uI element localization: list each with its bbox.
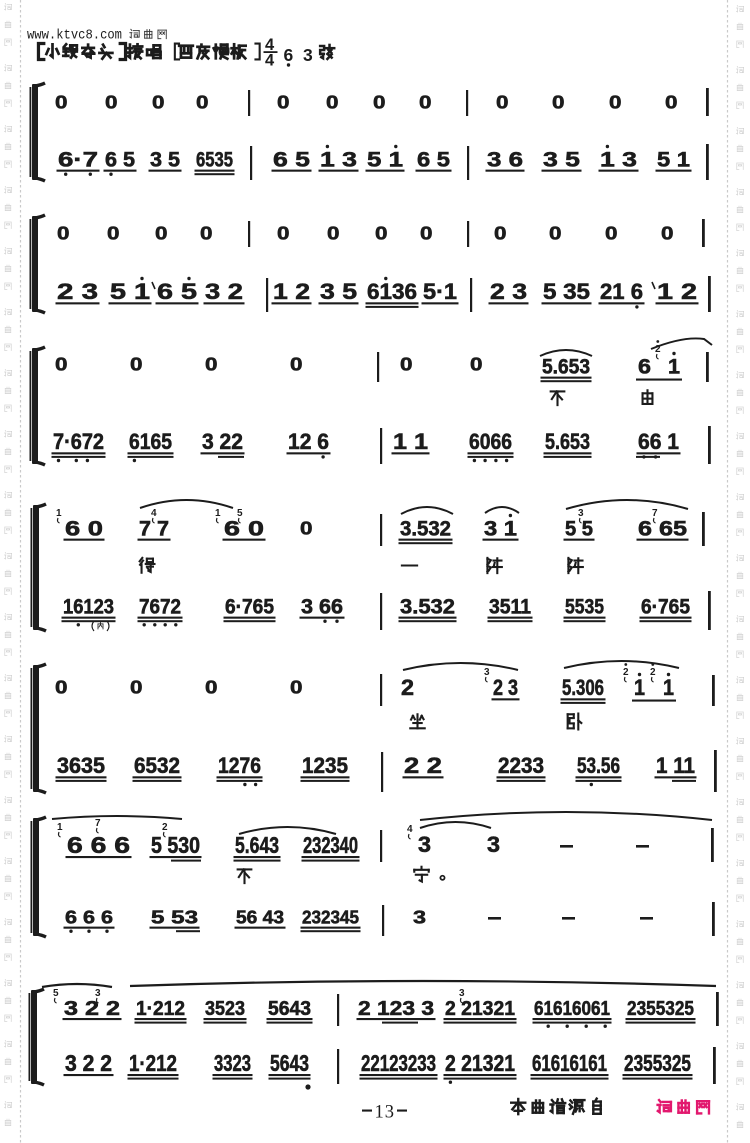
- svg-text:1·212: 1·212: [136, 998, 185, 1020]
- svg-text:3 6: 3 6: [487, 148, 523, 171]
- svg-text:6: 6: [284, 45, 294, 65]
- svg-text:3: 3: [487, 832, 500, 857]
- svg-text:6 0: 6 0: [65, 517, 103, 540]
- svg-text:5: 5: [237, 508, 243, 519]
- svg-text:6 5: 6 5: [273, 148, 310, 171]
- svg-text:1: 1: [663, 675, 674, 700]
- svg-text:6532: 6532: [134, 753, 180, 778]
- svg-text:3511: 3511: [489, 595, 531, 618]
- svg-text:2: 2: [623, 667, 629, 678]
- svg-text:3: 3: [303, 45, 313, 65]
- svg-text:5·1: 5·1: [423, 279, 457, 304]
- svg-text:3 66: 3 66: [301, 595, 343, 618]
- svg-text:5.306: 5.306: [562, 675, 604, 700]
- svg-text:2 123 3: 2 123 3: [358, 998, 434, 1020]
- svg-text:3.532: 3.532: [400, 595, 455, 618]
- svg-text:6: 6: [638, 355, 651, 378]
- svg-text:3 2 2: 3 2 2: [65, 1050, 112, 1076]
- svg-text:3635: 3635: [57, 753, 105, 778]
- svg-text:6 6 6: 6 6 6: [65, 906, 113, 927]
- svg-text:3 2: 3 2: [205, 279, 243, 304]
- svg-text:0: 0: [55, 677, 68, 698]
- svg-text:1 3: 1 3: [320, 148, 357, 171]
- svg-text:66 1: 66 1: [638, 429, 679, 454]
- svg-text:5.643: 5.643: [235, 832, 279, 858]
- svg-text:3: 3: [459, 988, 465, 999]
- svg-text:3 22: 3 22: [202, 429, 243, 454]
- svg-text:6066: 6066: [469, 429, 512, 454]
- svg-text:1 11: 1 11: [656, 753, 695, 778]
- svg-text:3.532: 3.532: [400, 517, 451, 540]
- svg-text:3: 3: [578, 508, 584, 519]
- svg-text:1 2: 1 2: [657, 279, 697, 304]
- svg-text:1: 1: [56, 508, 62, 519]
- svg-text:0: 0: [196, 92, 209, 113]
- svg-text:5 1: 5 1: [367, 148, 403, 171]
- svg-text:1: 1: [668, 355, 680, 378]
- svg-text:1276: 1276: [218, 753, 261, 778]
- svg-text:www.ktvc8.com: www.ktvc8.com: [27, 29, 122, 44]
- svg-text:3 5: 3 5: [150, 148, 180, 171]
- svg-text:12 6: 12 6: [288, 429, 329, 454]
- svg-text:0: 0: [665, 92, 678, 113]
- svg-text:0: 0: [290, 677, 303, 698]
- svg-text:1: 1: [57, 822, 63, 833]
- svg-text:6·765: 6·765: [641, 595, 690, 618]
- svg-text:2 21321: 2 21321: [445, 998, 515, 1020]
- svg-text:2 3: 2 3: [493, 675, 518, 700]
- svg-text:5.653: 5.653: [542, 355, 590, 378]
- svg-text:3 5: 3 5: [543, 148, 580, 171]
- svg-text:0: 0: [420, 223, 433, 244]
- svg-text:1235: 1235: [302, 753, 348, 778]
- svg-text:61616161: 61616161: [532, 1050, 607, 1076]
- svg-text:0: 0: [326, 92, 339, 113]
- svg-text:3 1: 3 1: [484, 517, 517, 540]
- svg-text:0: 0: [470, 354, 483, 375]
- svg-text:2 3: 2 3: [57, 279, 98, 304]
- svg-text:6 5: 6 5: [417, 148, 450, 171]
- svg-text:6 65: 6 65: [638, 517, 687, 540]
- svg-text:0: 0: [55, 92, 68, 113]
- svg-text:5643: 5643: [270, 1050, 309, 1076]
- svg-text:0: 0: [400, 354, 413, 375]
- svg-text:0: 0: [419, 92, 432, 113]
- svg-text:0: 0: [152, 92, 165, 113]
- svg-text:6136: 6136: [367, 279, 417, 304]
- svg-text:5535: 5535: [565, 595, 604, 618]
- svg-text:5 1: 5 1: [657, 148, 690, 171]
- svg-text:13: 13: [375, 1103, 395, 1123]
- svg-text:0: 0: [300, 518, 313, 539]
- svg-text:21 6: 21 6: [600, 279, 643, 304]
- svg-text:61616061: 61616061: [534, 998, 610, 1020]
- svg-text:5 53: 5 53: [151, 906, 198, 927]
- svg-text:1 1: 1 1: [393, 429, 428, 454]
- svg-text:3 5: 3 5: [320, 279, 357, 304]
- svg-text:0: 0: [200, 223, 213, 244]
- svg-text:2 2: 2 2: [404, 753, 442, 778]
- svg-text:0: 0: [290, 354, 303, 375]
- svg-text:6535: 6535: [196, 148, 233, 171]
- svg-text:6 5: 6 5: [157, 279, 197, 304]
- svg-text:0: 0: [552, 92, 565, 113]
- svg-text:3: 3: [484, 667, 490, 678]
- svg-text:2: 2: [650, 667, 656, 678]
- svg-text:6 6 6: 6 6 6: [67, 832, 130, 858]
- svg-text:5: 5: [53, 988, 59, 999]
- svg-text:3323: 3323: [214, 1050, 251, 1076]
- svg-text:0: 0: [496, 92, 509, 113]
- svg-text:1 3: 1 3: [600, 148, 637, 171]
- svg-text:0: 0: [205, 354, 218, 375]
- svg-text:7672: 7672: [139, 595, 181, 618]
- svg-text:7: 7: [95, 818, 101, 829]
- svg-text:2 3: 2 3: [490, 279, 527, 304]
- svg-text:5 1: 5 1: [110, 279, 150, 304]
- svg-text:1: 1: [634, 675, 645, 700]
- svg-text:0: 0: [105, 92, 118, 113]
- svg-text:1 2: 1 2: [273, 279, 310, 304]
- svg-text:0: 0: [107, 223, 120, 244]
- svg-text:3: 3: [418, 832, 431, 857]
- svg-text:2355325: 2355325: [624, 1050, 691, 1076]
- svg-text:56 43: 56 43: [236, 906, 284, 927]
- svg-text:5.653: 5.653: [545, 429, 590, 454]
- svg-text:0: 0: [549, 223, 562, 244]
- svg-text:22123233: 22123233: [361, 1050, 436, 1076]
- svg-text:0: 0: [609, 92, 622, 113]
- svg-text:7: 7: [652, 508, 658, 519]
- svg-text:6·7: 6·7: [58, 148, 98, 171]
- svg-text:0: 0: [130, 677, 143, 698]
- svg-text:5 35: 5 35: [543, 279, 590, 304]
- svg-text:2: 2: [401, 675, 414, 700]
- svg-text:3: 3: [95, 988, 101, 999]
- svg-text:7·672: 7·672: [53, 429, 104, 454]
- svg-text:4: 4: [265, 52, 275, 70]
- svg-text:4: 4: [151, 508, 157, 519]
- svg-text:4: 4: [407, 824, 413, 835]
- svg-text:0: 0: [55, 354, 68, 375]
- svg-text:2233: 2233: [498, 753, 544, 778]
- svg-text:0: 0: [373, 92, 386, 113]
- svg-text:6 0: 6 0: [224, 517, 264, 540]
- svg-text:232340: 232340: [303, 832, 358, 858]
- svg-text:0: 0: [375, 223, 388, 244]
- svg-text:2: 2: [162, 822, 168, 833]
- svg-text:1: 1: [215, 508, 221, 519]
- svg-text:5643: 5643: [268, 998, 311, 1020]
- svg-text:3: 3: [413, 906, 426, 927]
- svg-text:232345: 232345: [302, 906, 359, 927]
- svg-text:0: 0: [494, 223, 507, 244]
- svg-text:0: 0: [605, 223, 618, 244]
- svg-text:3523: 3523: [205, 998, 245, 1020]
- svg-text:53.56: 53.56: [577, 753, 620, 778]
- svg-text:6165: 6165: [129, 429, 172, 454]
- svg-text:0: 0: [661, 223, 674, 244]
- svg-text:0: 0: [277, 92, 290, 113]
- svg-text:0: 0: [155, 223, 168, 244]
- svg-text:7 7: 7 7: [139, 517, 169, 540]
- svg-text:2 21321: 2 21321: [445, 1050, 515, 1076]
- svg-text:1·212: 1·212: [129, 1050, 177, 1076]
- svg-text:0: 0: [130, 354, 143, 375]
- svg-text:0: 0: [277, 223, 290, 244]
- svg-text:0: 0: [327, 223, 340, 244]
- svg-text:0: 0: [205, 677, 218, 698]
- svg-text:16123: 16123: [63, 595, 114, 618]
- svg-text:2355325: 2355325: [627, 998, 694, 1020]
- svg-text:6·765: 6·765: [225, 595, 274, 618]
- svg-text:3 2 2: 3 2 2: [64, 998, 120, 1020]
- svg-text:6 5: 6 5: [105, 148, 135, 171]
- svg-text:5 530: 5 530: [151, 832, 200, 858]
- svg-text:0: 0: [57, 223, 70, 244]
